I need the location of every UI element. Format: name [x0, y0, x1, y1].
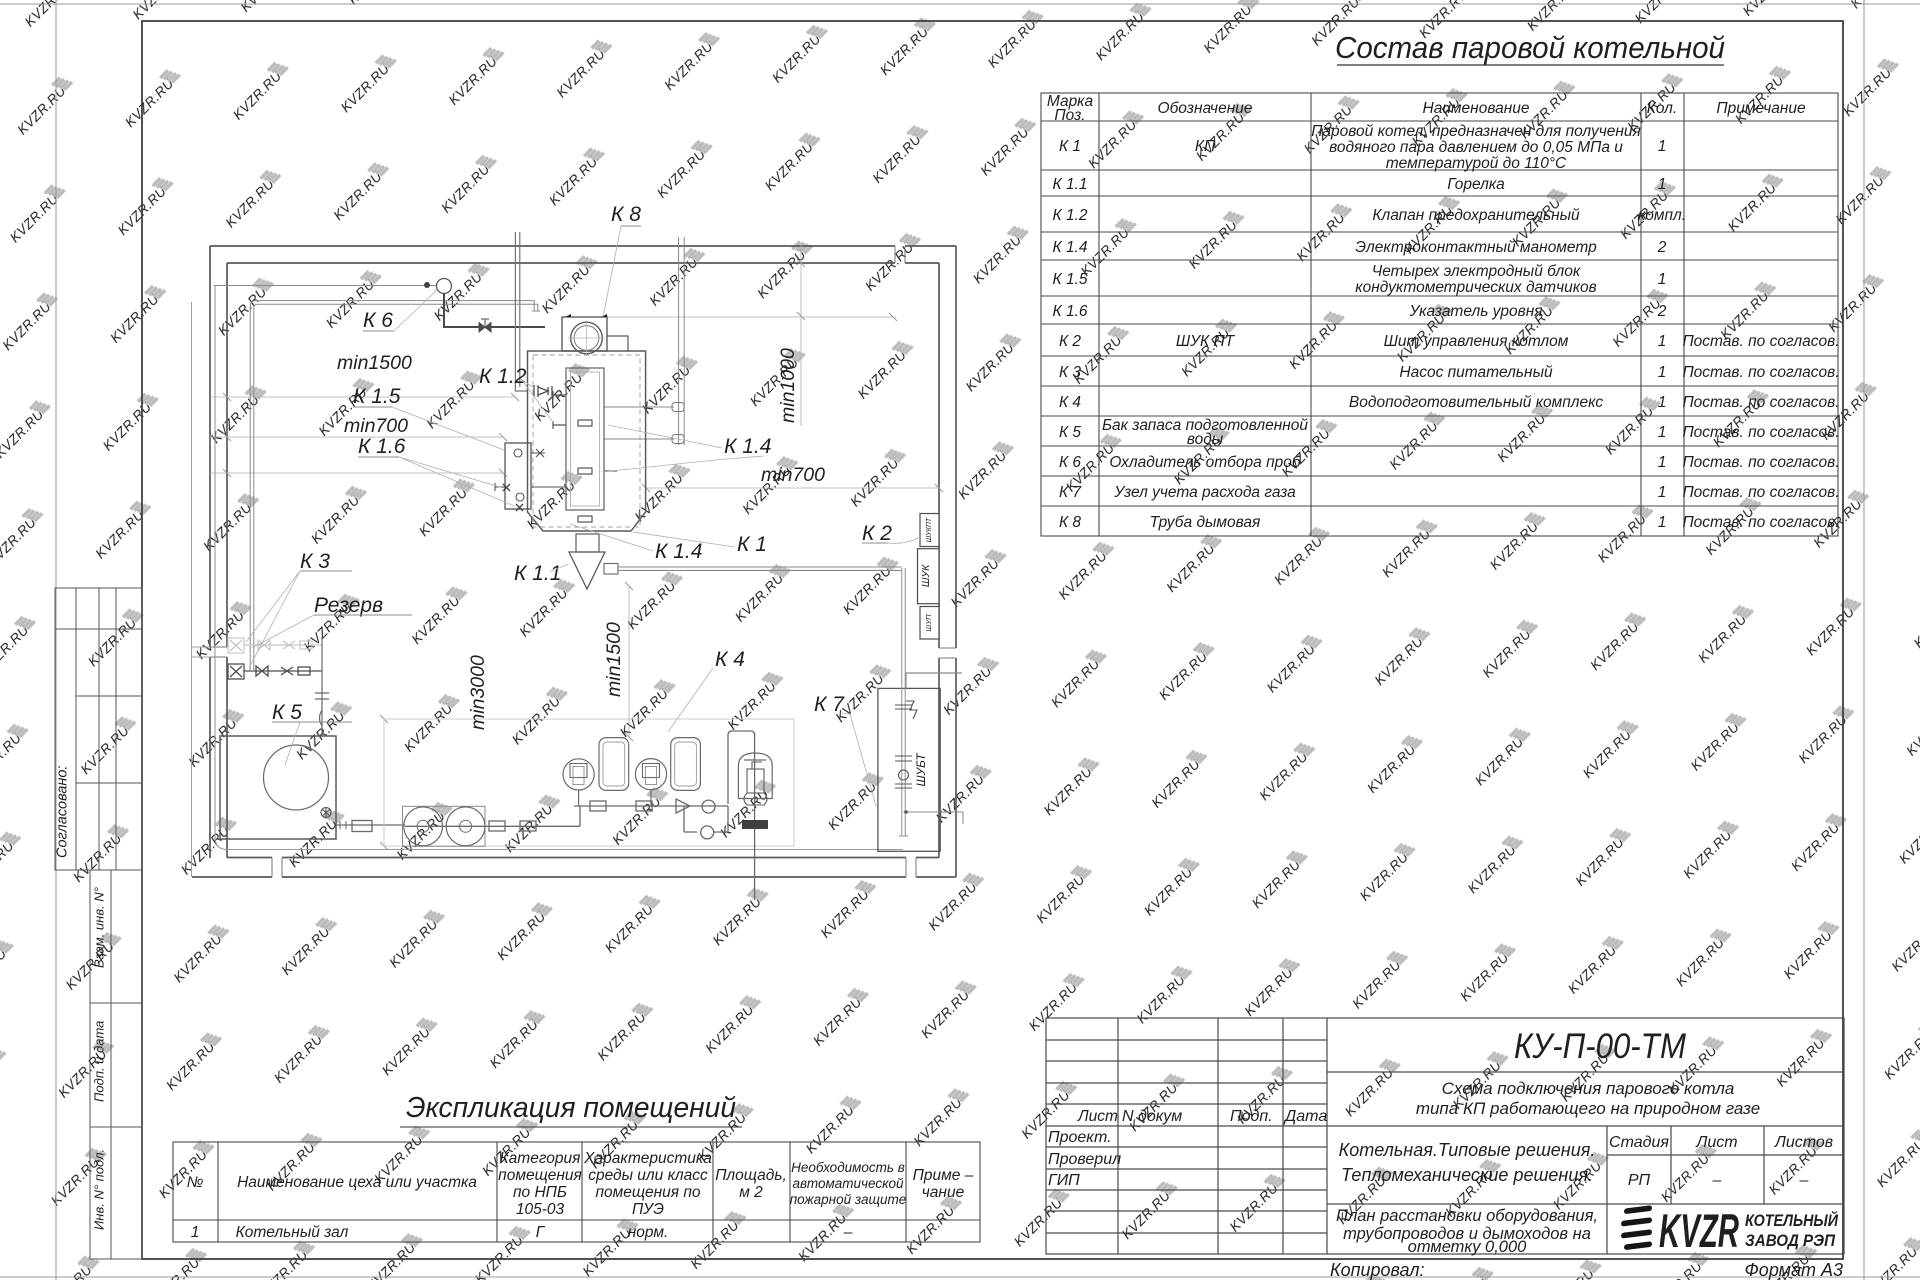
svg-text:Насос питательный: Насос питательный: [1399, 364, 1553, 381]
svg-text:Экспликация помещений: Экспликация помещений: [406, 1092, 736, 1124]
svg-text:КОТЕЛЬНЫЙ: КОТЕЛЬНЫЙ: [1745, 1210, 1839, 1230]
svg-text:ГИП: ГИП: [1048, 1172, 1080, 1189]
svg-text:Тепломеханические решения.: Тепломеханические решения.: [1341, 1165, 1593, 1185]
svg-text:min1000: min1000: [777, 348, 799, 423]
svg-text:Четырех электродный блок: Четырех электродный блок: [1372, 263, 1581, 280]
svg-text:К 8: К 8: [1059, 514, 1081, 531]
svg-text:Подп.: Подп.: [1230, 1108, 1273, 1125]
svg-text:Листов: Листов: [1774, 1134, 1833, 1151]
svg-text:Наименование: Наименование: [1423, 100, 1530, 117]
svg-text:KVZR: KVZR: [1659, 1204, 1739, 1257]
svg-text:ЗАВОД РЭП: ЗАВОД РЭП: [1745, 1232, 1836, 1250]
svg-text:Постав. по согласов.: Постав. по согласов.: [1682, 424, 1839, 441]
svg-text:Указатель уровня: Указатель уровня: [1408, 303, 1542, 320]
svg-text:температурой до 110°С: температурой до 110°С: [1386, 155, 1567, 172]
svg-text:Копировал:: Копировал:: [1330, 1260, 1425, 1280]
svg-text:К 3: К 3: [1059, 364, 1081, 381]
svg-text:Котельная.Типовые решения.: Котельная.Типовые решения.: [1339, 1140, 1596, 1160]
svg-text:№: №: [187, 1174, 204, 1191]
svg-text:Постав. по согласов.: Постав. по согласов.: [1682, 454, 1839, 471]
svg-text:К 1: К 1: [737, 533, 767, 556]
svg-text:Лист: Лист: [1695, 1134, 1737, 1151]
svg-text:компл.: компл.: [1638, 207, 1686, 224]
svg-text:1: 1: [1658, 514, 1667, 531]
svg-text:по НПБ: по НПБ: [513, 1184, 567, 1201]
svg-text:Горелка: Горелка: [1447, 176, 1505, 193]
svg-text:К 2: К 2: [862, 522, 892, 545]
svg-text:К 5: К 5: [272, 701, 302, 724]
svg-text:Взам. инв. N°: Взам. инв. N°: [92, 887, 107, 968]
svg-text:К 4: К 4: [1059, 394, 1081, 411]
svg-text:min1500: min1500: [603, 622, 625, 697]
svg-text:ШУК ПТ: ШУК ПТ: [1176, 333, 1236, 350]
svg-text:РП: РП: [1628, 1172, 1651, 1189]
svg-text:К 1.4: К 1.4: [1053, 239, 1088, 256]
svg-text:К 1.1: К 1.1: [1053, 176, 1088, 193]
svg-text:1: 1: [1658, 176, 1667, 193]
svg-text:2: 2: [1657, 239, 1667, 256]
svg-text:К 1.6: К 1.6: [358, 435, 406, 458]
svg-text:Проверил: Проверил: [1048, 1151, 1121, 1168]
svg-text:Постав. по согласов.: Постав. по согласов.: [1682, 364, 1839, 381]
svg-text:Примечание: Примечание: [1716, 100, 1806, 117]
svg-text:Стадия: Стадия: [1609, 1134, 1669, 1151]
svg-text:К 1.6: К 1.6: [1053, 303, 1088, 320]
svg-text:Необходимость в: Необходимость в: [791, 1160, 905, 1175]
svg-text:Схема подключения парового кот: Схема подключения парового котла: [1442, 1079, 1735, 1098]
svg-text:Характеристика: Характеристика: [583, 1150, 712, 1167]
svg-text:Согласовано:: Согласовано:: [55, 766, 71, 858]
svg-text:ШУКПТ: ШУКПТ: [926, 517, 933, 542]
svg-text:К 1.1: К 1.1: [514, 562, 561, 585]
svg-text:водяного пара давлением до 0,: водяного пара давлением до 0,05 МПа и: [1329, 139, 1623, 156]
svg-text:ШУБТ: ШУБТ: [914, 752, 928, 787]
svg-text:Постав. по согласов.: Постав. по согласов.: [1682, 394, 1839, 411]
svg-text:Лист: Лист: [1077, 1108, 1118, 1125]
svg-text:помещения по: помещения по: [595, 1184, 700, 1201]
svg-text:1: 1: [1658, 333, 1667, 350]
svg-text:ПУЭ: ПУЭ: [632, 1201, 664, 1218]
svg-text:1: 1: [1658, 454, 1667, 471]
svg-text:К 1.5: К 1.5: [1053, 271, 1088, 288]
svg-text:К 2: К 2: [1059, 333, 1081, 350]
svg-text:Паровой котел, предназначен дл: Паровой котел, предназначен для получени…: [1311, 123, 1641, 140]
svg-text:К 5: К 5: [1059, 424, 1081, 441]
svg-text:м 2: м 2: [739, 1184, 763, 1201]
svg-text:–: –: [843, 1224, 853, 1241]
svg-text:Площадь,: Площадь,: [715, 1167, 787, 1184]
svg-text:Обозначение: Обозначение: [1158, 100, 1253, 117]
svg-text:Клапан предохранительный: Клапан предохранительный: [1372, 207, 1580, 224]
svg-text:–: –: [1799, 1172, 1809, 1189]
svg-text:К 4: К 4: [715, 648, 745, 671]
svg-text:КП: КП: [1195, 138, 1216, 155]
svg-text:N докум: N докум: [1122, 1108, 1182, 1125]
svg-text:2: 2: [1657, 303, 1667, 320]
svg-text:1: 1: [1658, 424, 1667, 441]
svg-text:1: 1: [1658, 138, 1667, 155]
svg-text:Водоподготовительный комплекс: Водоподготовительный комплекс: [1349, 394, 1603, 411]
svg-text:1: 1: [1658, 271, 1667, 288]
svg-text:План расстановки оборудования,: План расстановки оборудования,: [1336, 1207, 1598, 1225]
svg-text:К 3: К 3: [300, 550, 330, 573]
svg-text:Наименование цеха или участка: Наименование цеха или участка: [237, 1174, 477, 1191]
svg-text:пожарной защите: пожарной защите: [790, 1192, 907, 1207]
svg-text:105-03: 105-03: [516, 1201, 565, 1218]
svg-text:Подп. и дата: Подп. и дата: [92, 1021, 107, 1102]
svg-text:Резерв: Резерв: [314, 594, 383, 617]
svg-text:Поз.: Поз.: [1054, 107, 1085, 124]
svg-text:ШУП: ШУП: [924, 614, 933, 632]
svg-text:К 1: К 1: [1059, 138, 1081, 155]
svg-text:Постав. по согласов.: Постав. по согласов.: [1682, 484, 1839, 501]
svg-text:К 6: К 6: [1059, 454, 1081, 471]
svg-text:1: 1: [191, 1224, 200, 1241]
svg-text:отметку 0,000: отметку 0,000: [1408, 1238, 1528, 1256]
svg-text:помещения: помещения: [498, 1167, 582, 1184]
svg-text:Приме –: Приме –: [913, 1167, 974, 1184]
svg-text:К 7: К 7: [814, 693, 845, 716]
svg-text:Проект.: Проект.: [1048, 1129, 1112, 1146]
svg-text:–: –: [1712, 1172, 1722, 1189]
svg-text:Категория: Категория: [500, 1150, 581, 1167]
svg-text:Шит управления котлом: Шит управления котлом: [1384, 333, 1569, 350]
svg-text:1: 1: [1658, 394, 1667, 411]
svg-text:Дата: Дата: [1283, 1108, 1327, 1125]
svg-text:Котельный зал: Котельный зал: [236, 1224, 349, 1241]
svg-text:Охладитель отбора проб: Охладитель отбора проб: [1109, 454, 1301, 471]
svg-text:Постав. по согласов.: Постав. по согласов.: [1682, 514, 1839, 531]
svg-text:Постав. по согласов.: Постав. по согласов.: [1682, 333, 1839, 350]
svg-text:кондуктометрических датчиков: кондуктометрических датчиков: [1355, 279, 1597, 296]
svg-text:К 1.4: К 1.4: [724, 435, 771, 458]
svg-text:среды или класс: среды или класс: [588, 1167, 708, 1184]
svg-text:Инв. N° подл.: Инв. N° подл.: [92, 1149, 107, 1230]
svg-text:КУ-П-00-ТМ: КУ-П-00-ТМ: [1514, 1027, 1687, 1066]
svg-text:Кол.: Кол.: [1647, 100, 1677, 117]
svg-text:ШУК: ШУК: [920, 564, 932, 587]
svg-text:min1500: min1500: [337, 352, 412, 374]
svg-text:автоматической: автоматической: [792, 1176, 903, 1191]
svg-text:К 1.2: К 1.2: [1053, 207, 1088, 224]
svg-text:К 1.4: К 1.4: [655, 540, 702, 563]
svg-text:1: 1: [1658, 484, 1667, 501]
svg-text:1: 1: [1658, 364, 1667, 381]
svg-text:Электроконтактный манометр: Электроконтактный манометр: [1355, 239, 1597, 256]
svg-text:Узел учета расхода газа: Узел учета расхода газа: [1113, 484, 1296, 501]
svg-text:типа КП работающего на природн: типа КП работающего на природном газе: [1416, 1099, 1760, 1118]
svg-text:min3000: min3000: [467, 655, 489, 730]
svg-text:К 1.2: К 1.2: [479, 365, 527, 388]
svg-text:К 8: К 8: [611, 203, 641, 226]
svg-text:норм.: норм.: [628, 1224, 669, 1241]
svg-text:воды: воды: [1187, 431, 1224, 448]
svg-text:Формат А3: Формат А3: [1745, 1260, 1844, 1280]
svg-text:min700: min700: [761, 464, 825, 486]
svg-text:чание: чание: [922, 1184, 965, 1201]
svg-text:min700: min700: [344, 415, 408, 437]
svg-text:К 6: К 6: [363, 309, 393, 332]
svg-text:К 1.5: К 1.5: [353, 385, 401, 408]
svg-text:К 7: К 7: [1059, 484, 1082, 501]
svg-text:Состав паровой котельной: Состав паровой котельной: [1335, 30, 1725, 65]
svg-text:Труба дымовая: Труба дымовая: [1150, 514, 1261, 531]
